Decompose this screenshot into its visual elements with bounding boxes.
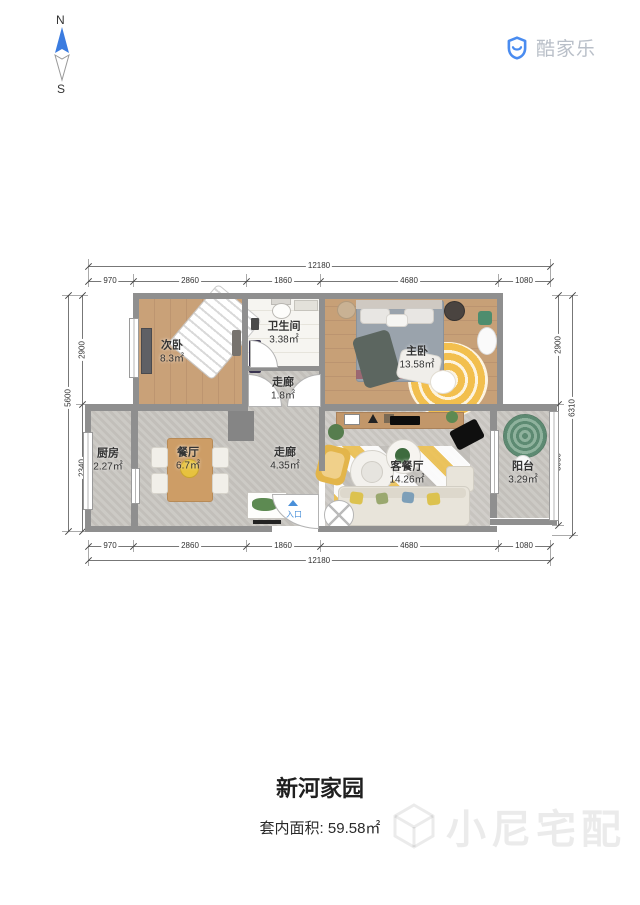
chair: [212, 473, 229, 494]
area-value: 59.58㎡: [328, 820, 381, 837]
nightstand-right: [444, 301, 465, 321]
pillow-right: [404, 308, 434, 324]
pillow-blue: [401, 491, 414, 503]
bathroom-cabinet: [251, 318, 259, 330]
toilet-icon: [272, 303, 291, 319]
balcony-chair: [503, 414, 547, 458]
column-block: [228, 411, 254, 441]
entrance-arrow-icon: [288, 500, 298, 506]
pillow-green: [375, 492, 388, 505]
room-label-dining: 餐厅 6.7㎡: [176, 445, 200, 472]
brand-logo: 酷家乐: [504, 34, 596, 61]
bathroom-counter: [294, 300, 318, 311]
coffee-table-plate: [361, 461, 383, 483]
door-kitchen: [131, 468, 140, 504]
entrance-label: 入口: [286, 509, 302, 520]
photo-frame: [344, 414, 360, 425]
wall-balcony-cap-top: [549, 404, 557, 411]
room-label-kitchen: 厨房 2.27㎡: [93, 446, 122, 473]
plan-title: 新河家园: [0, 771, 640, 803]
chair: [212, 447, 229, 468]
dim-line-left-total: [68, 295, 69, 531]
pillow-yellow: [349, 491, 364, 505]
shelf: [232, 330, 241, 356]
dim-bottom-total: 12180: [306, 556, 332, 565]
dim-left-total: 5600: [64, 387, 73, 409]
wall-upper-right: [497, 293, 503, 404]
room-label-master-bedroom: 主卧 13.58㎡: [399, 344, 434, 371]
wall-hall-living: [319, 411, 325, 471]
room-label-hallway-small: 走廊 1.8㎡: [271, 375, 295, 402]
door-living-balcony: [490, 430, 499, 494]
room-label-hallway: 走廊 4.35㎡: [270, 445, 299, 472]
dim-right-total: 6310: [568, 397, 577, 419]
clothes-rack: [477, 327, 497, 355]
window-second-bedroom: [129, 318, 139, 378]
room-label-living-dining: 客餐厅 14.26㎡: [389, 459, 424, 486]
plan-area-text: 套内面积: 59.58㎡: [0, 817, 640, 838]
wall-bottom-right: [318, 526, 497, 532]
wall-balcony-bottom: [490, 519, 557, 525]
compass-needle-icon: [50, 26, 74, 82]
chair: [151, 447, 168, 468]
dim-top-total: 12180: [306, 261, 332, 270]
window-kitchen: [83, 432, 93, 510]
compass-south-label: S: [57, 82, 65, 96]
wall-mid-left: [85, 404, 248, 411]
chair: [151, 473, 168, 494]
wall-mid-right: [319, 404, 549, 411]
floorplan-page: { "compass": { "north": "N", "south": "S…: [0, 0, 640, 905]
brand-name: 酷家乐: [536, 34, 596, 61]
dresser: [141, 328, 152, 374]
pillow-yellow2: [426, 492, 440, 505]
wall-top: [133, 293, 503, 299]
window-balcony: [549, 411, 559, 521]
room-label-bathroom: 卫生间 3.38㎡: [268, 319, 301, 346]
room-label-second-bedroom: 次卧 8.3㎡: [160, 338, 184, 365]
compass-north-label: N: [56, 13, 65, 27]
kujiale-shield-icon: [504, 35, 530, 61]
wall-bottom-left: [85, 526, 272, 532]
pet-bed: [430, 370, 456, 394]
nightstand-left: [337, 301, 356, 319]
tv-icon: [390, 416, 420, 425]
room-label-balcony: 阳台 3.29㎡: [508, 459, 537, 486]
plant-basket: [478, 311, 492, 325]
area-label: 套内面积:: [260, 820, 324, 837]
living-plant-left: [328, 424, 344, 440]
console-plant: [446, 411, 458, 423]
pillow-center: [386, 314, 408, 327]
doormat: [253, 520, 281, 524]
